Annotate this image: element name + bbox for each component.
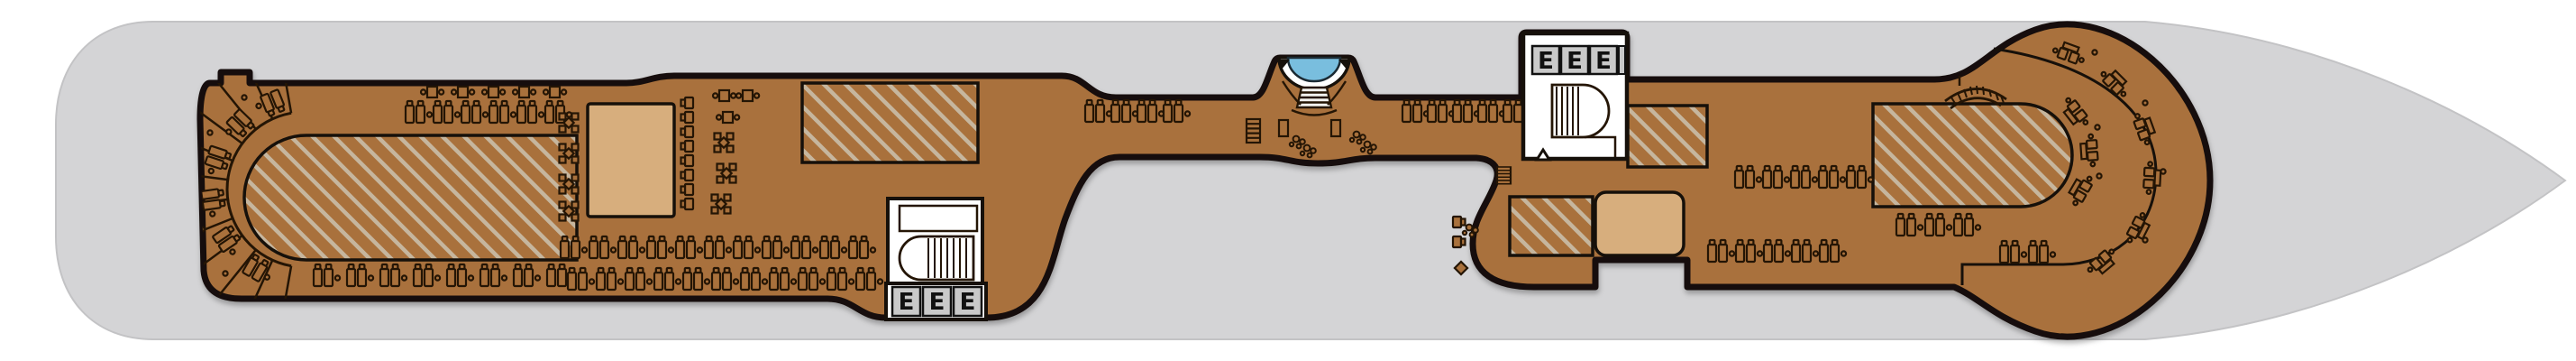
- elevator-letter: E: [929, 289, 945, 316]
- elevator-letter: E: [960, 289, 976, 316]
- deck-door: [1279, 120, 1288, 136]
- forward-port-sun-area: [1628, 106, 1707, 167]
- midship-sun-area: [802, 83, 978, 162]
- forward-deckhouse: E E E: [1523, 33, 1627, 160]
- chair-icon: [681, 184, 694, 195]
- forward-starboard-sun-area: [1510, 197, 1593, 255]
- chair-icon: [1453, 217, 1466, 227]
- bow-lounger-row-1: [1896, 214, 1980, 236]
- chair-icon: [681, 170, 694, 180]
- deck-plan-svg: E E E: [0, 0, 2576, 361]
- chair-icon: [681, 199, 694, 209]
- chair-icon: [681, 155, 694, 166]
- aft-elevator-bank: E E E: [886, 283, 986, 319]
- elevator-letter: E: [1595, 48, 1612, 75]
- elevator-cell: E E E: [892, 287, 982, 316]
- forward-structure: [1595, 192, 1684, 255]
- elevator-letter: E: [1538, 48, 1554, 75]
- chair-icon: [681, 112, 694, 123]
- spiral-stairs-icon: [900, 236, 973, 280]
- chair-icon: [681, 126, 694, 137]
- ladder-stairs-icon: [1247, 119, 1260, 143]
- bow-sun-area: [1873, 104, 2072, 207]
- deck-door: [1331, 120, 1340, 136]
- chair-icon: [1453, 236, 1466, 247]
- deck-plan-canvas: E E E: [0, 0, 2576, 361]
- aft-stairwell: [888, 199, 982, 285]
- chair-icon: [681, 141, 694, 152]
- ladder-stairs-icon: [1497, 167, 1511, 184]
- elevator-letter: E: [1567, 48, 1583, 75]
- elevator-letter: E: [899, 289, 915, 316]
- aft-structure: [588, 104, 674, 217]
- chair-icon: [681, 97, 694, 108]
- aft-sun-area: [244, 135, 577, 260]
- forward-elevator-bank: E E E: [1532, 46, 1625, 75]
